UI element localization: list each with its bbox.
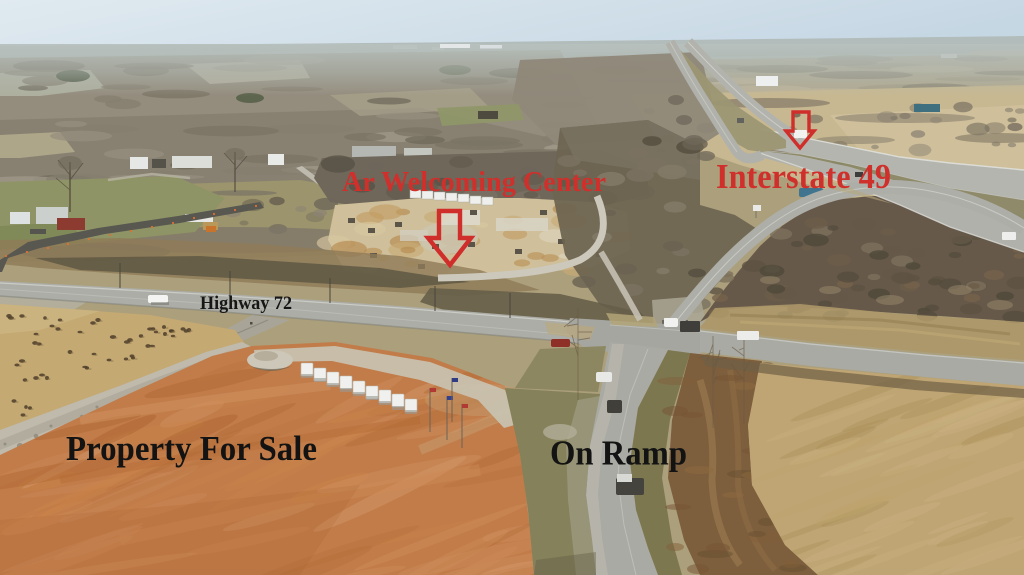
svg-text:On Ramp: On Ramp [550,434,687,473]
svg-text:Ar Welcoming Center: Ar Welcoming Center [342,166,606,198]
svg-text:Interstate 49: Interstate 49 [716,157,891,196]
svg-text:Highway 72: Highway 72 [200,293,292,314]
svg-text:Property For Sale: Property For Sale [66,429,317,468]
